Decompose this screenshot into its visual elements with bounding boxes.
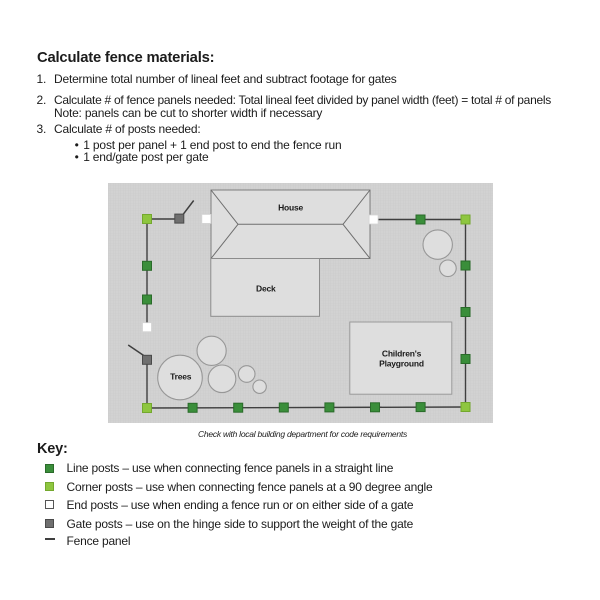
svg-text:Trees: Trees [170, 372, 192, 382]
svg-text:Children's: Children's [382, 348, 422, 358]
svg-text:Playground: Playground [379, 358, 424, 368]
svg-text:House: House [278, 203, 303, 213]
svg-text:Deck: Deck [256, 283, 276, 293]
